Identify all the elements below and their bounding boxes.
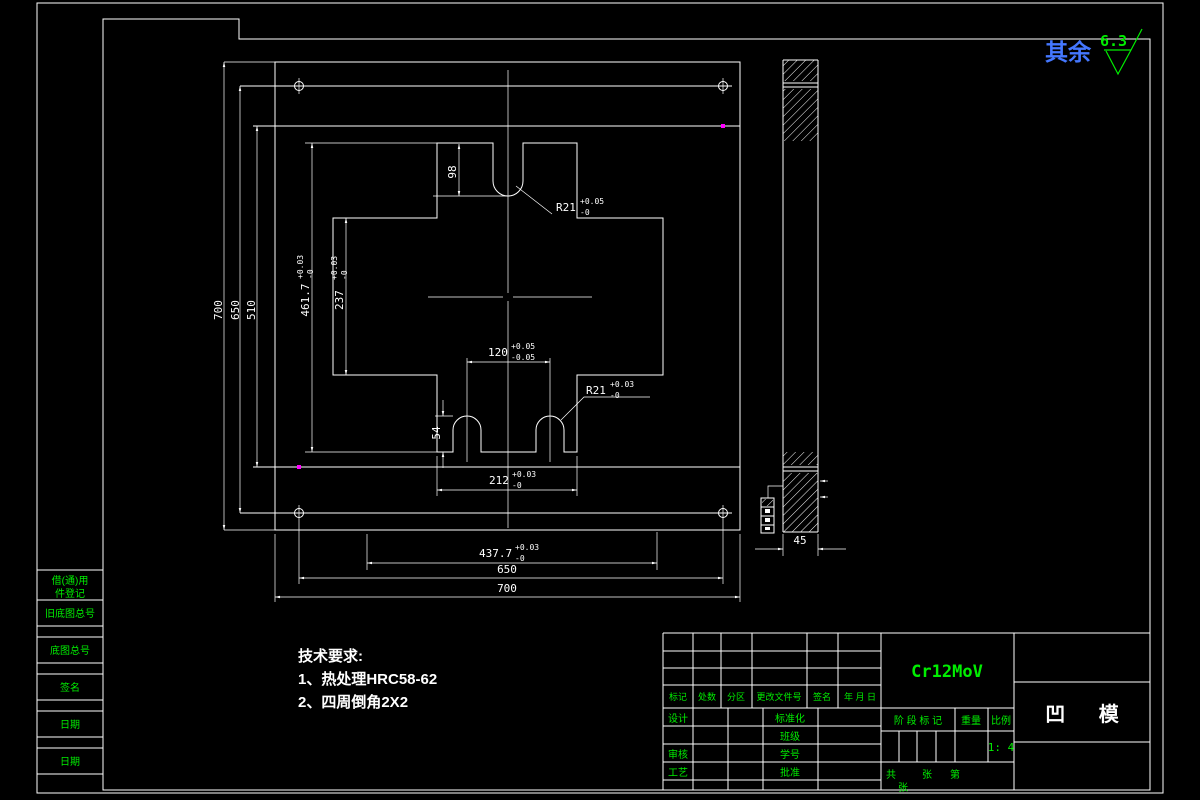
border-label: 签名 <box>60 681 80 694</box>
svg-text:-0.05: -0.05 <box>511 353 535 362</box>
svg-text:237: 237 <box>333 290 346 310</box>
dim-54: 54 <box>430 400 453 468</box>
drawing-svg: 借(通)用 件登记 旧底图总号 底图总号 签名 日期 日期 其余 6.3 <box>0 0 1200 800</box>
border-label: 底图总号 <box>50 644 90 657</box>
die-cavity-outline <box>333 143 663 452</box>
title-block: 标记 处数 分区 更改文件号 签名 年 月 日 设计 审核 工艺 标准化 班级 … <box>663 633 1150 794</box>
tech-line-1: 1、热处理HRC58-62 <box>298 670 437 688</box>
border-label: 旧底图总号 <box>45 607 95 620</box>
svg-text:437.7: 437.7 <box>479 547 512 560</box>
centerlines <box>428 70 592 528</box>
rev-header: 分区 <box>727 692 745 702</box>
dim-510-left: 510 <box>245 126 258 467</box>
border-label: 日期 <box>60 756 80 768</box>
dim-45: 45 <box>755 534 846 556</box>
detail-symbol <box>761 486 783 533</box>
svg-text:+0.03: +0.03 <box>610 380 634 389</box>
svg-text:-0: -0 <box>515 554 525 563</box>
svg-text:120: 120 <box>488 346 508 359</box>
role-approve: 批准 <box>780 766 800 779</box>
qiyu-label: 其余 <box>1045 39 1092 65</box>
svg-text:650: 650 <box>229 300 242 320</box>
role-process: 工艺 <box>668 767 688 779</box>
dim-4617-vertical: 461.7 +0.03 -0 <box>296 143 437 452</box>
svg-text:650: 650 <box>497 563 517 576</box>
svg-text:700: 700 <box>497 582 517 595</box>
role-design: 设计 <box>668 712 688 725</box>
part-name: 凹 模 <box>1045 702 1133 726</box>
role-class: 班级 <box>780 731 800 743</box>
tech-line-2: 2、四周倒角2X2 <box>298 693 408 711</box>
role-studentid: 学号 <box>780 748 800 761</box>
weight-label: 重量 <box>961 714 981 727</box>
tech-requirements: 技术要求: 1、热处理HRC58-62 2、四周倒角2X2 <box>298 647 437 711</box>
svg-text:212: 212 <box>489 474 509 487</box>
svg-text:R21: R21 <box>586 384 606 397</box>
svg-text:700: 700 <box>212 300 225 320</box>
page-frame <box>37 3 1163 793</box>
sheet-total-label: 共 <box>886 769 896 781</box>
sheet-zhang-label: 张 <box>922 769 932 781</box>
svg-text:54: 54 <box>430 426 443 440</box>
svg-text:461.7: 461.7 <box>299 283 312 316</box>
stage-label: 阶 段 标 记 <box>894 714 942 727</box>
dim-120: 120 +0.05 -0.05 <box>467 342 550 362</box>
sheet-zhang2-label: 张 <box>898 782 908 794</box>
role-standard: 标准化 <box>775 712 805 725</box>
svg-text:+0.03: +0.03 <box>296 255 305 279</box>
section-view: 45 <box>755 60 846 556</box>
rev-header: 更改文件号 <box>756 691 801 702</box>
surface-finish-note: 其余 6.3 <box>1045 29 1142 74</box>
cad-canvas: 借(通)用 件登记 旧底图总号 底图总号 签名 日期 日期 其余 6.3 <box>0 0 1200 800</box>
svg-text:-0: -0 <box>512 481 522 490</box>
svg-text:-0: -0 <box>580 208 590 217</box>
hatch-band <box>783 60 818 81</box>
svg-text:98: 98 <box>446 165 459 178</box>
border-label: 日期 <box>60 719 80 731</box>
border-label: 借(通)用 <box>52 575 89 587</box>
rev-header: 处数 <box>698 691 716 702</box>
point-marker <box>297 465 301 469</box>
svg-text:+0.05: +0.05 <box>511 342 535 351</box>
roughness-value: 6.3 <box>1100 32 1127 50</box>
dim-700-left: 700 <box>212 62 275 530</box>
material-label: Cr12MoV <box>911 662 983 682</box>
border-blocks: 借(通)用 件登记 旧底图总号 底图总号 签名 日期 日期 <box>37 570 103 774</box>
svg-text:510: 510 <box>245 300 258 320</box>
dim-r21-top: R21 +0.05 -0 <box>516 186 604 217</box>
svg-text:-0: -0 <box>610 391 620 400</box>
svg-text:+0.03: +0.03 <box>515 543 539 552</box>
dim-98: 98 <box>433 144 510 196</box>
dim-212: 212 +0.03 -0 <box>437 456 577 496</box>
sheet-no-label: 第 <box>950 768 960 781</box>
svg-text:+0.03: +0.03 <box>512 470 536 479</box>
svg-text:-0: -0 <box>340 270 349 280</box>
tech-title: 技术要求: <box>298 647 363 665</box>
role-check: 审核 <box>668 748 688 761</box>
svg-text:45: 45 <box>793 534 806 547</box>
point-marker <box>721 124 725 128</box>
border-label: 件登记 <box>55 587 85 600</box>
svg-text:R21: R21 <box>556 201 576 214</box>
rev-header: 年 月 日 <box>844 691 876 702</box>
scale-label: 比例 <box>991 714 1011 727</box>
rev-header: 标记 <box>669 691 687 702</box>
rev-header: 签名 <box>813 691 831 702</box>
hatch-band <box>783 452 818 465</box>
dim-r21-bottom: R21 +0.03 -0 <box>561 380 650 420</box>
svg-text:-0: -0 <box>306 269 315 279</box>
hatch-band <box>783 89 818 141</box>
dim-650-left: 650 <box>229 86 242 513</box>
svg-text:+0.05: +0.05 <box>580 197 604 206</box>
hatch-band <box>783 473 818 532</box>
main-view: 700 650 510 461.7 +0.03 -0 237 +0.03 -0 <box>212 62 740 602</box>
svg-text:+0.03: +0.03 <box>330 256 339 280</box>
scale-value: 1: 4 <box>988 741 1015 754</box>
